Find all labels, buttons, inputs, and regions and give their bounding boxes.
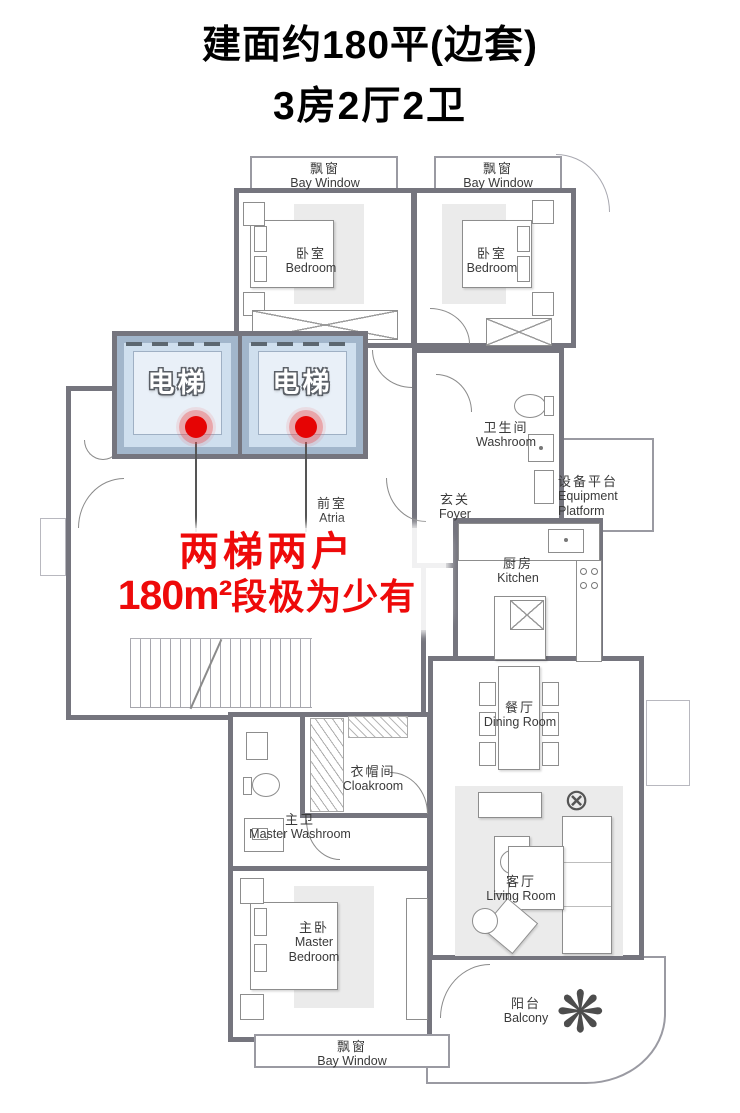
kitchen-island-hatch (510, 600, 544, 630)
wardrobe (486, 318, 552, 346)
room-label-balcony: 阳台 Balcony (478, 996, 574, 1026)
toilet (514, 394, 546, 418)
label-zh: 飘窗 (255, 161, 395, 176)
callout-line1: 两梯两户 (88, 531, 446, 574)
label-zh: 主卫 (238, 812, 362, 827)
label-en: Atria (297, 511, 367, 526)
toilet-tank (243, 777, 252, 795)
stove-burner (591, 582, 598, 589)
room-label-dining-room: 餐厅 Dining Room (452, 700, 588, 730)
label-zh: 前室 (297, 496, 367, 511)
room-label-master-washroom: 主卫 Master Washroom (238, 812, 362, 842)
label-en: Kitchen (468, 571, 568, 586)
label-zh: 玄关 (416, 492, 494, 507)
stove-burner (591, 568, 598, 575)
room-label-kitchen: 厨房 Kitchen (468, 556, 568, 586)
label-zh: 卧室 (256, 246, 366, 261)
elevator-left: 电梯 (117, 336, 238, 454)
staircase (130, 638, 312, 708)
stove-burner (580, 582, 587, 589)
elevator-right-label: 电梯 (249, 361, 356, 400)
floor-plan-page: 建面约180平(边套) 3房2厅2卫 (0, 0, 740, 1113)
page-title-line1: 建面约180平(边套) (0, 14, 740, 70)
page-title: 建面约180平(边套) 3房2厅2卫 (0, 14, 740, 131)
elevator-block: 电梯 电梯 (112, 331, 368, 459)
label-zh: 卫生间 (448, 420, 564, 435)
laundry-unit (534, 470, 554, 504)
label-zh: 餐厅 (452, 700, 588, 715)
nightstand (240, 878, 264, 904)
label-zh: 客厅 (458, 874, 584, 889)
stove-burner (580, 568, 587, 575)
label-en: Balcony (478, 1011, 574, 1026)
room-label-washroom: 卫生间 Washroom (448, 420, 564, 450)
room-label-cloakroom: 衣帽间 Cloakroom (318, 764, 428, 794)
kitchen-side-counter (576, 560, 602, 662)
label-zh: 设备平台 (558, 474, 650, 489)
room-label-bay-window-top-left: 飘窗 Bay Window (255, 161, 395, 191)
callout-line2-rest: 段极为少有 (231, 576, 416, 617)
room-label-master-bedroom: 主卧 Master Bedroom (268, 920, 360, 965)
label-en: Washroom (448, 435, 564, 450)
nightstand (243, 202, 265, 226)
sink-drain (564, 538, 568, 542)
label-zh: 飘窗 (257, 1039, 447, 1054)
toilet (252, 773, 280, 797)
label-zh: 卧室 (437, 246, 547, 261)
label-en: Dining Room (452, 715, 588, 730)
label-zh: 主卧 (268, 920, 360, 935)
room-label-foyer: 玄关 Foyer (416, 492, 494, 522)
room-label-living-room: 客厅 Living Room (458, 874, 584, 904)
callout-line2: 180m²段极为少有 (88, 574, 446, 617)
room-label-atria: 前室 Atria (297, 496, 367, 526)
label-en: Equipment Platform (558, 489, 650, 519)
nightstand (532, 200, 554, 224)
label-zh: 衣帽间 (318, 764, 428, 779)
label-en: Bay Window (436, 176, 560, 191)
elevator-marker-dot (295, 416, 317, 438)
side-table-icon: ⊗ (564, 786, 589, 816)
marketing-callout: 两梯两户 180m²段极为少有 (88, 528, 446, 630)
room-label-bedroom-right: 卧室 Bedroom (437, 246, 547, 276)
label-zh: 飘窗 (436, 161, 560, 176)
callout-leader-line (195, 442, 197, 532)
label-en: Master Washroom (238, 827, 362, 842)
nightstand (532, 292, 554, 316)
label-en: Bedroom (437, 261, 547, 276)
label-en: Master Bedroom (268, 935, 360, 965)
elevator-marker-dot (185, 416, 207, 438)
label-zh: 厨房 (468, 556, 568, 571)
label-zh: 阳台 (478, 996, 574, 1011)
room-label-bedroom-left: 卧室 Bedroom (256, 246, 366, 276)
page-title-line2: 3房2厅2卫 (0, 75, 740, 131)
closet (406, 898, 428, 1020)
toilet-tank (544, 396, 554, 416)
label-en: Foyer (416, 507, 494, 522)
exterior-ledge (40, 518, 66, 576)
dining-chair (479, 742, 496, 766)
ottoman (472, 908, 498, 934)
cloakroom-shelf (348, 716, 408, 738)
elevator-left-label: 电梯 (124, 361, 231, 400)
pillow (254, 908, 267, 936)
label-en: Cloakroom (318, 779, 428, 794)
nightstand (240, 994, 264, 1020)
dining-chair (542, 742, 559, 766)
label-en: Bay Window (257, 1054, 447, 1069)
exterior-ac-platform (646, 700, 690, 786)
label-en: Living Room (458, 889, 584, 904)
room-label-equipment-platform: 设备平台 Equipment Platform (558, 474, 650, 519)
pillow (254, 944, 267, 972)
callout-area-number: 180m² (118, 572, 232, 618)
label-en: Bedroom (256, 261, 366, 276)
room-label-bay-window-top-right: 飘窗 Bay Window (436, 161, 560, 191)
room-label-bay-window-bottom: 飘窗 Bay Window (257, 1039, 447, 1069)
washer (246, 732, 268, 760)
tv-bench (478, 792, 542, 818)
label-en: Bay Window (255, 176, 395, 191)
